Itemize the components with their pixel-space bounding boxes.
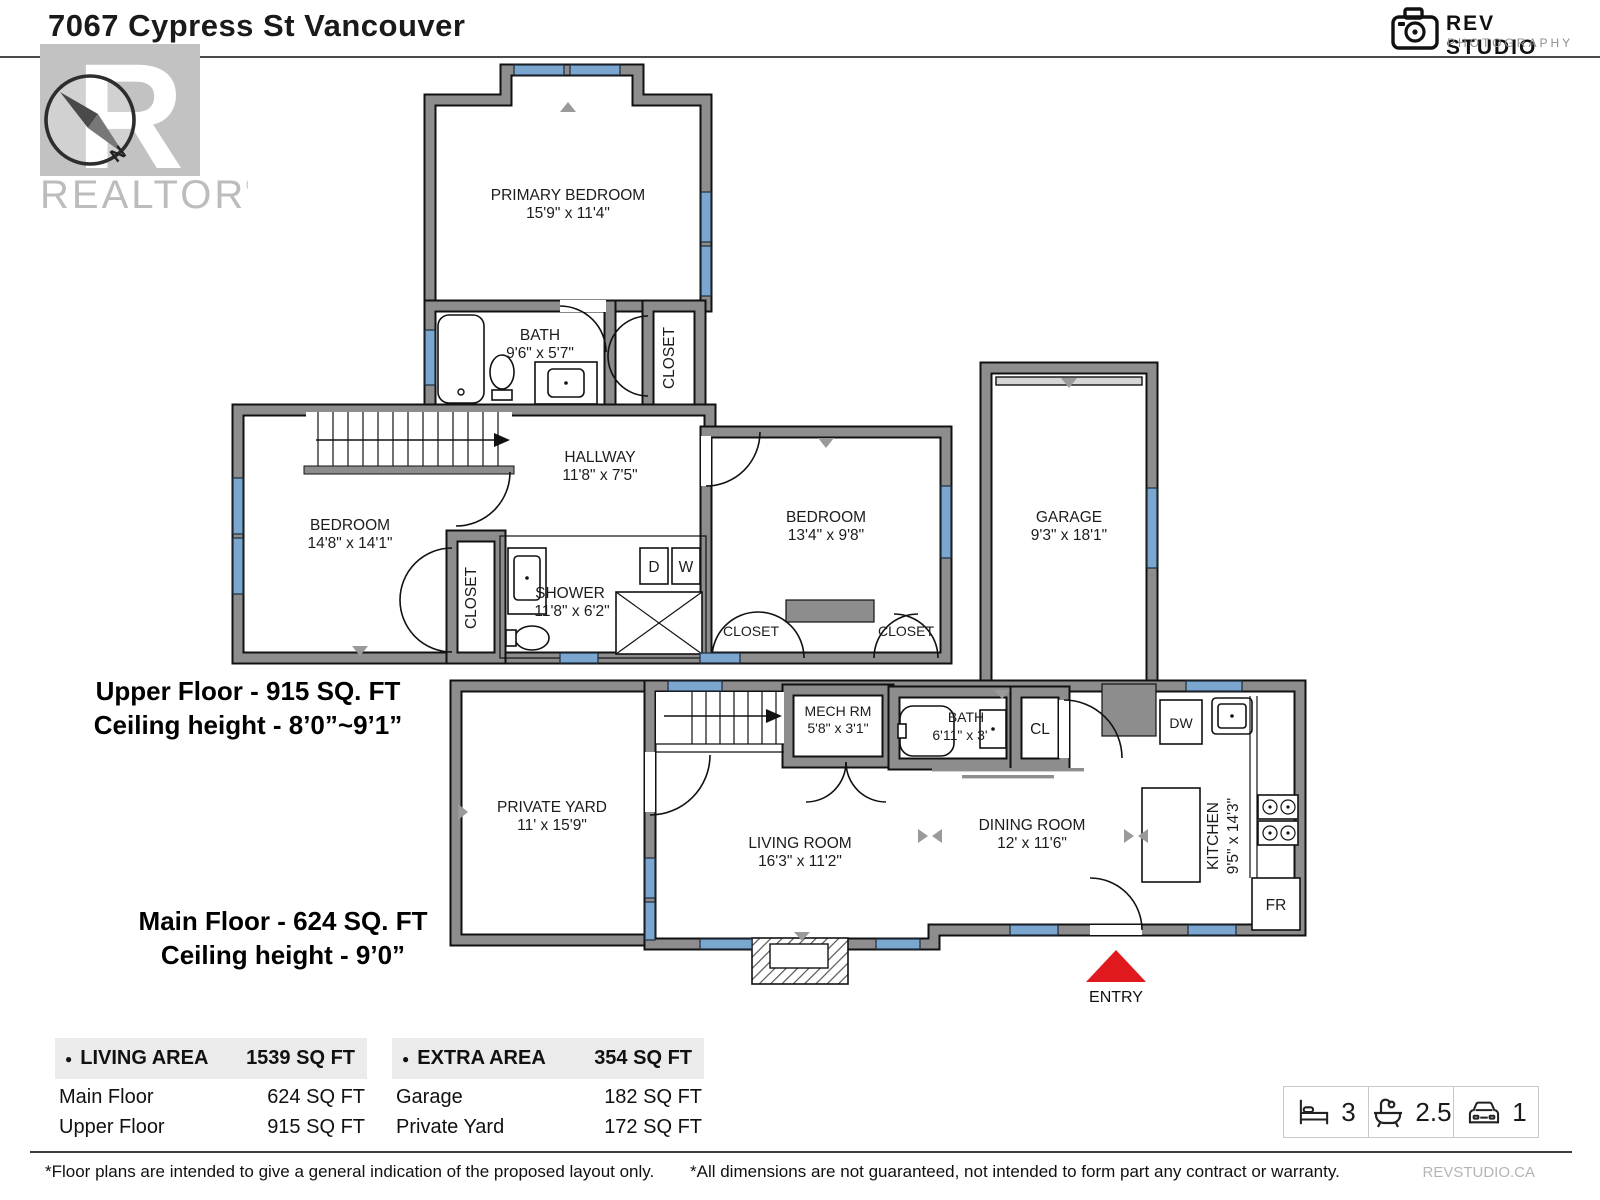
bath-slider-line2	[962, 775, 1054, 778]
row-label: Main Floor	[59, 1086, 153, 1109]
upper-closet-label: CLOSET	[661, 326, 678, 389]
extra-area-title: EXTRA AREA	[417, 1047, 594, 1070]
extra-area-total: 354 SQ FT	[594, 1047, 692, 1070]
main-bath-dims: 6'11" x 3'	[932, 727, 987, 743]
footer-disclaimer-right: *All dimensions are not guaranteed, not …	[690, 1162, 1340, 1182]
upper-bath-label: BATH	[520, 327, 560, 344]
fr-label: FR	[1266, 897, 1287, 914]
primary-bedroom-dims: 15'9" x 11'4"	[526, 205, 610, 222]
dryer-label: D	[648, 559, 659, 576]
row-value: 182 SQ FT	[604, 1086, 702, 1109]
washer-label: W	[679, 559, 694, 576]
table-row: Private Yard 172 SQ FT	[392, 1109, 704, 1139]
kitchen-label: KITCHEN	[1205, 802, 1222, 870]
row-label: Private Yard	[396, 1116, 504, 1139]
kitchen-dims: 9'5" x 14'3"	[1225, 798, 1242, 874]
mech-dims: 5'8" x 3'1"	[807, 720, 868, 736]
upper-bath-dims: 9'6" x 5'7"	[506, 345, 574, 362]
table-row: Garage 182 SQ FT	[392, 1079, 704, 1109]
dining-room-label: DINING ROOM	[979, 817, 1086, 834]
bedroom-left-label: BEDROOM	[310, 517, 390, 534]
living-area-title: LIVING AREA	[80, 1047, 246, 1070]
living-room-label: LIVING ROOM	[748, 835, 851, 852]
baths-stat: 2.5	[1368, 1087, 1453, 1137]
shower-stall	[616, 592, 702, 654]
shower-dims: 11'8" x 6'2"	[534, 603, 609, 620]
car-icon	[1465, 1097, 1503, 1127]
table-row: Upper Floor 915 SQ FT	[55, 1109, 367, 1139]
bedroom-right-dims: 13'4" x 9'8"	[788, 527, 864, 544]
bullet-icon: ●	[402, 1052, 409, 1066]
upper-floor-ceiling: Ceiling height - 8’0”~9’1”	[94, 710, 402, 740]
closet-shelf	[786, 600, 874, 622]
extra-area-table: ● EXTRA AREA 354 SQ FT Garage 182 SQ FT …	[392, 1038, 704, 1139]
garage-dims: 9'3" x 18'1"	[1031, 527, 1107, 544]
living-room-dims: 16'3" x 11'2"	[758, 853, 842, 870]
floor-plan-page: 7067 Cypress St Vancouver REV STUDIO PHO…	[0, 0, 1600, 1200]
mech-label: MECH RM	[805, 703, 872, 719]
footer-divider	[30, 1151, 1572, 1153]
main-floor-ceiling: Ceiling height - 9’0”	[161, 940, 405, 970]
cl-label: CL	[1030, 721, 1050, 738]
parking-stat: 1	[1453, 1087, 1538, 1137]
row-value: 624 SQ FT	[267, 1086, 365, 1109]
fireplace	[752, 938, 848, 984]
stairs-upper	[304, 412, 514, 474]
garage-label: GARAGE	[1036, 509, 1102, 526]
living-area-table: ● LIVING AREA 1539 SQ FT Main Floor 624 …	[55, 1038, 367, 1139]
stairs-main	[656, 692, 784, 752]
entry-label: ENTRY	[1089, 989, 1143, 1006]
footer-brand: REVSTUDIO.CA	[1405, 1164, 1535, 1181]
main-floor-plan: ENTRY PRIVATE YARD 11' x 15'9" MECH RM 5…	[456, 681, 1300, 1006]
hallway-label: HALLWAY	[564, 449, 635, 466]
floor-plan-svg: D W	[0, 0, 1600, 1200]
parking-count: 1	[1512, 1097, 1526, 1128]
beds-count: 3	[1341, 1097, 1355, 1128]
living-area-header: ● LIVING AREA 1539 SQ FT	[55, 1038, 367, 1079]
private-yard-label: PRIVATE YARD	[497, 799, 607, 816]
closet-bl-label: CLOSET	[723, 623, 779, 639]
extra-area-header: ● EXTRA AREA 354 SQ FT	[392, 1038, 704, 1079]
wall-block	[1102, 684, 1156, 736]
bullet-icon: ●	[65, 1052, 72, 1066]
entry-triangle	[1086, 950, 1146, 982]
bed-icon	[1296, 1097, 1332, 1127]
private-yard-dims: 11' x 15'9"	[517, 817, 587, 834]
main-bath-label: BATH	[948, 709, 984, 725]
bedroom-left-dims: 14'8" x 14'1"	[307, 535, 392, 552]
row-label: Garage	[396, 1086, 463, 1109]
dining-room-dims: 12' x 11'6"	[997, 835, 1067, 852]
baths-count: 2.5	[1415, 1097, 1451, 1128]
bath-slider-line	[932, 768, 1084, 771]
primary-bedroom-label: PRIMARY BEDROOM	[491, 187, 645, 204]
closet-br-label: CLOSET	[878, 623, 934, 639]
entry-marker: ENTRY	[1086, 950, 1146, 1006]
hallway-dims: 11'8" x 7'5"	[562, 467, 637, 484]
upper-floor-plan: D W	[233, 65, 1157, 686]
footer-disclaimer-left: *Floor plans are intended to give a gene…	[45, 1162, 654, 1182]
upper-floor-summary: Upper Floor - 915 SQ. FT	[96, 676, 401, 706]
closet-left-label: CLOSET	[463, 566, 480, 629]
dw-label: DW	[1169, 715, 1193, 731]
table-row: Main Floor 624 SQ FT	[55, 1079, 367, 1109]
row-value: 915 SQ FT	[267, 1116, 365, 1139]
main-floor-summary: Main Floor - 624 SQ. FT	[139, 906, 428, 936]
living-area-total: 1539 SQ FT	[246, 1047, 355, 1070]
bath-icon	[1370, 1095, 1406, 1129]
beds-stat: 3	[1284, 1087, 1368, 1137]
bedroom-right-label: BEDROOM	[786, 509, 866, 526]
row-value: 172 SQ FT	[604, 1116, 702, 1139]
row-label: Upper Floor	[59, 1116, 165, 1139]
property-stats: 3 2.5	[1283, 1086, 1539, 1138]
shower-label: SHOWER	[535, 585, 605, 602]
